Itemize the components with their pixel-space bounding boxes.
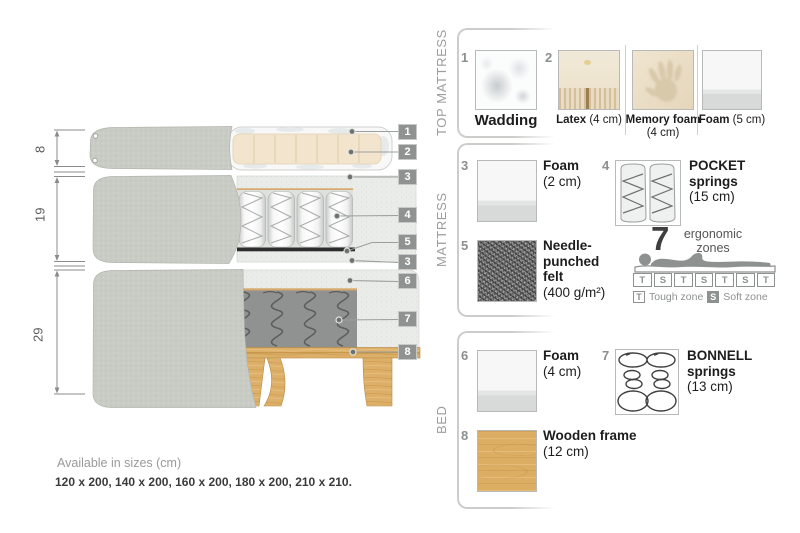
tough-zone-icon: T <box>633 291 645 303</box>
available-sizes-title: Available in sizes (cm) <box>57 456 181 470</box>
ergonomic-zones-row: T S T S T S T <box>633 273 775 287</box>
dimension-label-bed: 29 <box>30 321 46 349</box>
dimension-label-mattress: 19 <box>32 201 48 229</box>
bonnell-springs-swatch <box>615 349 679 415</box>
callout-1: 1 <box>398 124 417 140</box>
foam2-swatch <box>477 160 537 222</box>
bonnell-springs-icon <box>616 350 678 414</box>
callout-8: 8 <box>398 344 417 360</box>
zone-box: T <box>674 273 693 287</box>
soft-zone-icon: S <box>707 291 719 303</box>
dimension-lines <box>54 130 85 394</box>
item-number-foam2: 3 <box>461 158 468 173</box>
callout-3b: 3 <box>398 254 417 270</box>
zone-box: S <box>654 273 673 287</box>
zone-box: S <box>736 273 755 287</box>
zones-legend: T Tough zone S Soft zone <box>633 291 768 303</box>
callout-3: 3 <box>398 169 417 185</box>
item-number-wood: 8 <box>461 428 468 443</box>
felt-swatch <box>477 240 537 302</box>
zone-box: T <box>757 273 776 287</box>
pocket-springs-swatch <box>615 160 681 226</box>
pocket-springs-icon <box>616 161 680 225</box>
latex-swatch <box>558 50 620 110</box>
foam4-swatch <box>477 350 537 412</box>
callout-2: 2 <box>398 144 417 160</box>
top-mattress-layer <box>90 127 392 171</box>
foam5-label: Foam (5 cm) <box>687 114 777 127</box>
section-title-mattress: MATTRESS <box>433 143 450 317</box>
hand-imprint-icon <box>633 51 693 109</box>
item-number-wadding: 1 <box>461 50 468 65</box>
item-number-bonnell: 7 <box>602 348 609 363</box>
callout-5: 5 <box>398 234 417 250</box>
wadding-swatch <box>475 50 537 110</box>
mattress-infographic: 8 19 29 1 2 3 4 5 3 6 7 8 Available in s… <box>0 0 800 533</box>
callout-4: 4 <box>398 207 417 223</box>
felt-label: Needle-punched felt(400 g/m²) <box>543 238 615 301</box>
callout-6: 6 <box>398 273 417 289</box>
item-number-felt: 5 <box>461 238 468 253</box>
tough-zone-label: Tough zone <box>649 291 703 303</box>
section-title-bed: BED <box>433 331 450 509</box>
lying-person-icon <box>632 250 778 274</box>
bonnell-springs-label: BONNELL springs(13 cm) <box>687 348 765 395</box>
memory-foam-swatch <box>632 50 694 110</box>
pocket-springs-label: POCKET springs(15 cm) <box>689 158 767 205</box>
soft-zone-label: Soft zone <box>723 291 767 303</box>
foam5-swatch <box>702 50 762 110</box>
wooden-frame-swatch <box>477 430 537 492</box>
bed-base-layer <box>93 270 420 408</box>
zone-box: T <box>633 273 652 287</box>
dimension-label-top-mattress: 8 <box>32 136 48 162</box>
available-sizes-list: 120 x 200, 140 x 200, 160 x 200, 180 x 2… <box>55 475 352 489</box>
mattress-layer <box>93 176 416 264</box>
zone-box: T <box>715 273 734 287</box>
item-number-latex: 2 <box>545 50 552 65</box>
zone-box: S <box>695 273 714 287</box>
wooden-frame-label: Wooden frame(12 cm) <box>543 428 673 459</box>
item-number-foam4: 6 <box>461 348 468 363</box>
callout-7: 7 <box>398 311 417 327</box>
item-number-pocket: 4 <box>602 158 609 173</box>
